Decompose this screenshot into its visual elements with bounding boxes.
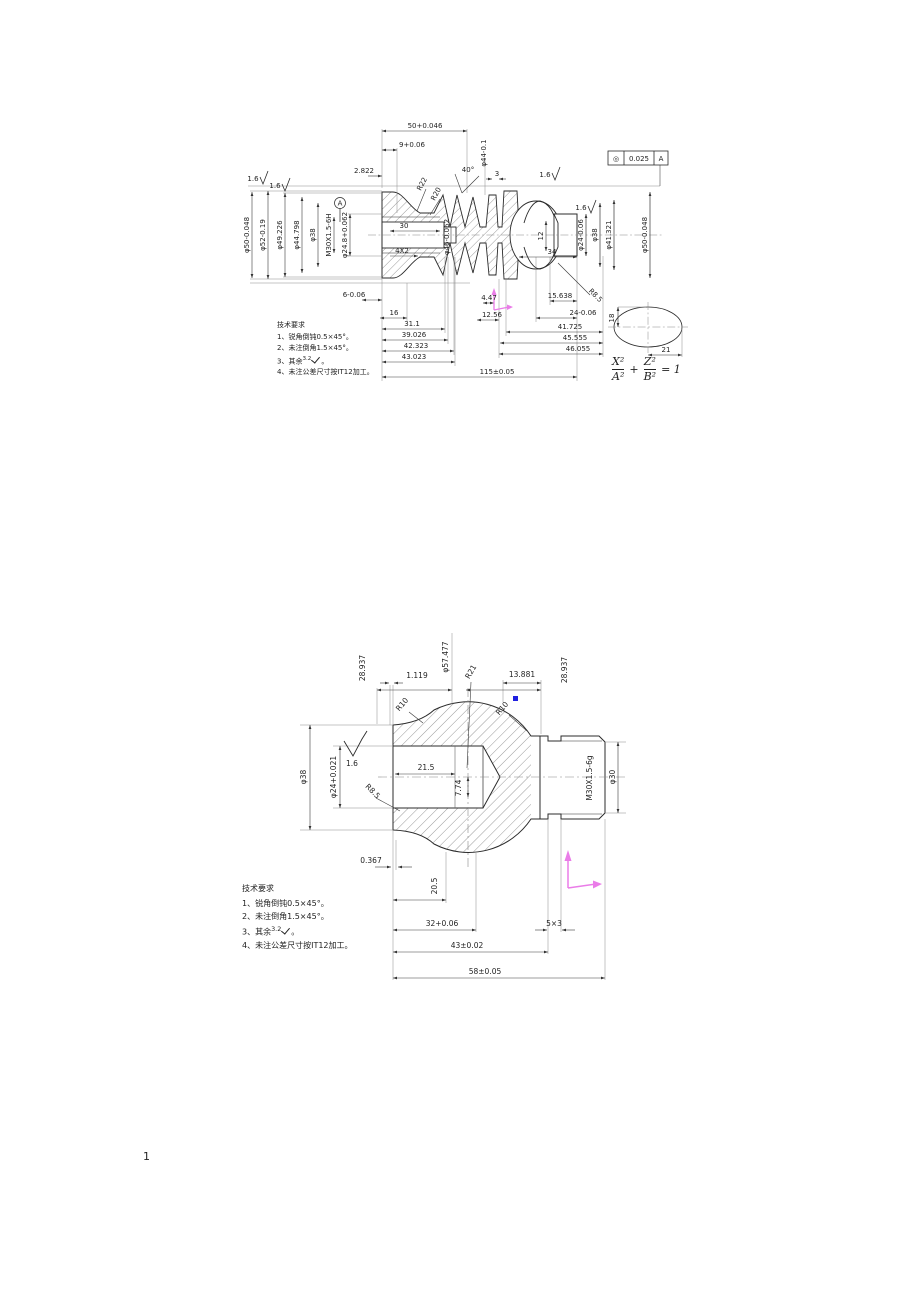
dim-215: 21.5 xyxy=(418,763,435,772)
notes-line: 1、锐角倒钝0.5×45°。 xyxy=(277,332,407,343)
dim-0367: 0.367 xyxy=(360,856,382,865)
formula-equals: = 1 xyxy=(661,363,681,376)
dim-41725: 41.725 xyxy=(558,323,583,331)
dim-9: 9+0.06 xyxy=(399,141,425,149)
notes-line-roughness: 3、其余3.2。 xyxy=(242,924,392,939)
dim-13881: 13.881 xyxy=(509,670,535,679)
dim-phi38: φ38 xyxy=(299,770,308,785)
dim-r10-left: R10 xyxy=(394,696,411,713)
dim-43: 43±0.02 xyxy=(451,941,484,950)
dim-2822: 2.822 xyxy=(354,167,374,175)
dim-205: 20.5 xyxy=(430,877,439,894)
dim-thread-m30-6h: M30X1.5-6H xyxy=(325,213,333,256)
formula-fraction-z: Z²B² xyxy=(644,356,657,382)
notes-line: 2、未注倒角1.5×45°。 xyxy=(242,910,392,924)
ellipse-detail xyxy=(608,302,688,357)
dim-phi57477: φ57.477 xyxy=(441,641,450,672)
roughness-1: 1.6 xyxy=(247,175,259,183)
tech-notes-top: 技术要求 1、锐角倒钝0.5×45°。 2、未注倒角1.5×45°。 3、其余3… xyxy=(277,320,407,378)
dim-ellipse-18: 18 xyxy=(608,314,616,323)
dim-phi248: φ24.8+0.062 xyxy=(341,212,349,258)
notes-title: 技术要求 xyxy=(277,320,407,331)
dim-phi38-right: φ38 xyxy=(591,228,599,242)
dim-50: 50+0.046 xyxy=(408,122,443,130)
dim-3: 3 xyxy=(495,170,499,178)
dim-phi24: φ24+0.021 xyxy=(329,756,338,798)
page-number: 1 xyxy=(143,1150,150,1163)
dim-774: 7.74 xyxy=(454,779,463,796)
dim-phi38-left: φ38 xyxy=(309,228,317,242)
dim-phi30: φ30 xyxy=(608,770,617,785)
dim-4x2: 4X2 xyxy=(395,247,409,255)
gdt-symbol: ◎ xyxy=(613,155,619,163)
notes-line: 4、未注公差尺寸按IT12加工。 xyxy=(277,367,407,378)
roughness-4: 1.6 xyxy=(575,204,587,212)
roughness-check-icon xyxy=(311,354,320,363)
selection-grip[interactable] xyxy=(513,696,518,701)
dim-28937-left: 28.937 xyxy=(358,655,367,681)
formula-fraction-x: X²A² xyxy=(612,356,624,382)
dim-1256: 12.56 xyxy=(482,311,503,319)
dim-24: 24-0.06 xyxy=(569,309,597,317)
dim-30: 30 xyxy=(400,222,409,230)
dim-phi44798: φ44.798 xyxy=(293,220,301,249)
dim-46055: 46.055 xyxy=(566,345,591,353)
dim-phi24-right: φ24-0.06 xyxy=(577,219,585,251)
dim-phi49226: φ49.226 xyxy=(276,220,284,250)
ellipse-formula: X²A² + Z²B² = 1 xyxy=(612,356,681,382)
dim-ellipse-21: 21 xyxy=(662,346,671,354)
ucs-icon xyxy=(565,850,603,889)
dim-thread-m30-6g: M30X1.5-6g xyxy=(585,755,594,801)
dim-32: 32+0.06 xyxy=(426,919,459,928)
gdt-datum-ref: A xyxy=(659,155,664,163)
dim-28937-right: 28.937 xyxy=(560,657,569,683)
dim-16: 16 xyxy=(390,309,399,317)
dim-40deg: 40° xyxy=(462,166,474,174)
dim-42323: 42.323 xyxy=(404,342,429,350)
dim-phi50-left: φ50-0.048 xyxy=(243,217,251,253)
dim-58: 58±0.05 xyxy=(469,967,502,976)
notes-line: 2、未注倒角1.5×45°。 xyxy=(277,343,407,354)
dim-phi41321: φ41.321 xyxy=(605,220,613,249)
roughness-3: 1.6 xyxy=(539,171,551,179)
notes-line-roughness: 3、其余3.2。 xyxy=(277,355,407,368)
dim-r85-top: R8.5 xyxy=(587,287,604,304)
bottom-drawing: 1.6 φ57.477 28.937 1.119 R21 13.881 28.9… xyxy=(230,600,650,1020)
roughness-symbol xyxy=(344,731,367,756)
dim-12: 12 xyxy=(537,232,545,241)
dim-6: 6-0.06 xyxy=(343,291,366,299)
dim-15638: 15.638 xyxy=(548,292,573,300)
dim-r22: R22 xyxy=(415,176,429,192)
roughness-2: 1.6 xyxy=(269,182,281,190)
tech-notes-bottom: 技术要求 1、锐角倒钝0.5×45°。 2、未注倒角1.5×45°。 3、其余3… xyxy=(242,882,392,953)
dim-34: 34 xyxy=(548,248,557,256)
dim-phi46: φ46-0.062 xyxy=(443,219,451,255)
dim-5x3: 5×3 xyxy=(546,919,562,928)
dim-r21: R21 xyxy=(463,663,478,680)
datum-label: A xyxy=(338,200,343,208)
dim-phi50-right: φ50-0.048 xyxy=(641,217,649,253)
notes-title: 技术要求 xyxy=(242,882,392,896)
gdt-value: 0.025 xyxy=(629,155,649,163)
dim-447: 4.47 xyxy=(481,294,497,302)
dim-115: 115±0.05 xyxy=(480,368,515,376)
dim-1119: 1.119 xyxy=(406,671,428,680)
dim-phi44: φ44-0.1 xyxy=(480,139,488,166)
notes-line: 1、锐角倒钝0.5×45°。 xyxy=(242,897,392,911)
notes-line: 4、未注公差尺寸按IT12加工。 xyxy=(242,939,392,953)
document-page: A ◎ 0.025 A 1.6 1.6 1.6 1.6 50+0.046 9+0… xyxy=(0,0,920,1302)
dim-rough-16: 1.6 xyxy=(346,759,358,768)
dim-r85: R8.5 xyxy=(364,782,383,801)
roughness-check-icon xyxy=(281,926,290,935)
dim-phi52: φ52-0.19 xyxy=(259,219,267,251)
formula-plus: + xyxy=(629,363,638,376)
dim-45555: 45.555 xyxy=(563,334,588,342)
